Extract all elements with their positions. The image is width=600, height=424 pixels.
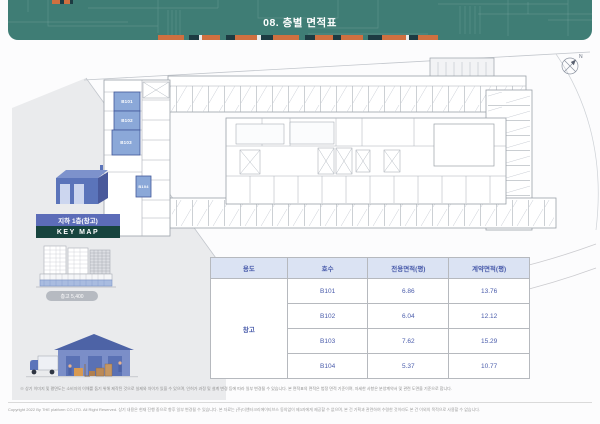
- plan-unit-label-b104: B104: [136, 176, 151, 197]
- table-row: 창고 B101 6.86 13.76: [211, 279, 530, 304]
- col-header-usage: 용도: [211, 258, 288, 279]
- page-title: 08. 층별 면적표: [8, 0, 592, 40]
- keymap-floor-label: 지하 1층(창고): [36, 214, 120, 226]
- unit-cell: B104: [287, 354, 368, 379]
- page-header-banner: 08. 층별 면적표: [8, 0, 592, 40]
- plan-unit-label-b101: B101: [114, 92, 140, 111]
- area-table-header-row: 용도 호수 전용면적(평) 계약면적(평): [211, 258, 530, 279]
- building-footprint: [104, 58, 556, 236]
- area-table: 용도 호수 전용면적(평) 계약면적(평) 창고 B101 6.86 13.76…: [210, 257, 530, 379]
- svg-text:N: N: [579, 54, 583, 60]
- footer-divider: [8, 402, 592, 403]
- building-elevation-illustration: [36, 246, 116, 287]
- unit-cell: B103: [287, 329, 368, 354]
- north-compass-icon: N: [562, 54, 583, 74]
- usage-cell: 창고: [211, 279, 288, 379]
- exclusive-area-cell: 6.86: [368, 279, 449, 304]
- disclaimer-note: ※ 상기 이미지 및 평면도는 소비자의 이해를 돕기 위해 제작된 것으로 실…: [20, 386, 584, 392]
- copyright-line: Copyright 2022 By THE platform CO.LTD. A…: [8, 407, 594, 413]
- col-header-contract: 계약면적(평): [449, 258, 530, 279]
- exclusive-area-cell: 6.04: [368, 304, 449, 329]
- plan-unit-label-b102: B102: [114, 111, 140, 130]
- unit-cell: B102: [287, 304, 368, 329]
- unit-cell: B101: [287, 279, 368, 304]
- contract-area-cell: 12.12: [449, 304, 530, 329]
- header-accent-strip: [158, 35, 438, 40]
- contract-area-cell: 13.76: [449, 279, 530, 304]
- plan-unit-label-b103: B103: [112, 130, 140, 155]
- exclusive-area-cell: 7.62: [368, 329, 449, 354]
- keymap-title: KEY MAP: [36, 226, 120, 238]
- col-header-unit: 호수: [287, 258, 368, 279]
- exclusive-area-cell: 5.37: [368, 354, 449, 379]
- contract-area-cell: 10.77: [449, 354, 530, 379]
- contract-area-cell: 15.29: [449, 329, 530, 354]
- header-accent-strip-top: [52, 0, 73, 4]
- col-header-exclusive: 전용면적(평): [368, 258, 449, 279]
- floor-height-badge: 층고 5,400: [46, 291, 98, 301]
